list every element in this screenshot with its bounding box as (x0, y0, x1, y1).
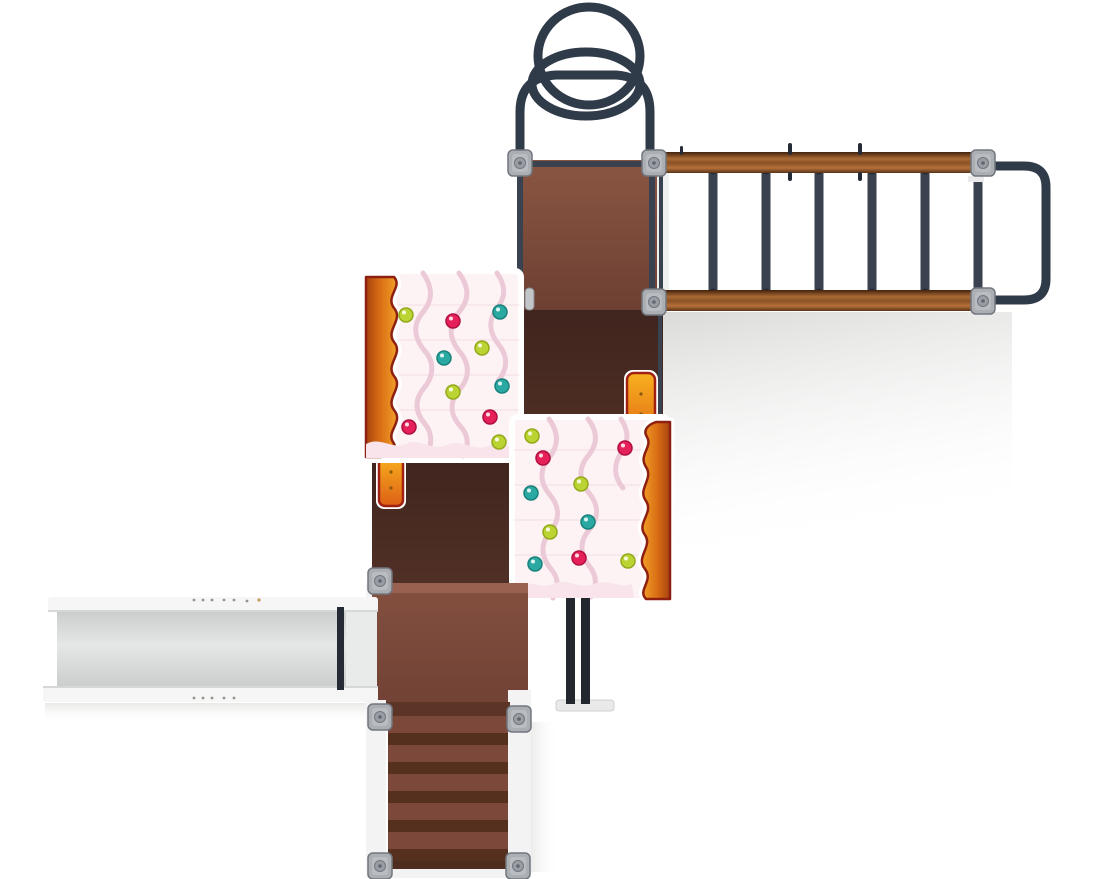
corner-connector (507, 706, 531, 732)
sprinkle-highlight (486, 413, 490, 417)
slide (43, 597, 378, 702)
stair-tread (388, 745, 508, 762)
sprinkle-lime (399, 308, 413, 322)
stair-riser-shadow (388, 791, 508, 803)
sprinkle-highlight (402, 311, 406, 315)
sprinkle-highlight (496, 308, 500, 312)
support-post (581, 598, 590, 704)
connector-bolt-center (517, 717, 521, 721)
hook-icon (858, 143, 862, 155)
sprinkle-lime (543, 525, 557, 539)
sprinkle-highlight (621, 444, 625, 448)
corner-connector (642, 150, 666, 176)
support-post (566, 598, 575, 704)
corner-connector (506, 853, 530, 879)
sprinkle-highlight (495, 438, 499, 442)
sprinkle-teal (524, 486, 538, 500)
sprinkle-highlight (498, 382, 502, 386)
sprinkle-red (572, 551, 586, 565)
sprinkle-highlight (527, 489, 531, 493)
shadow-right-of-stairs (531, 722, 559, 872)
sprinkle-red (618, 441, 632, 455)
end-foot-plate (968, 176, 984, 182)
playground-product-render (0, 0, 1110, 879)
stair-riser-shadow (388, 762, 508, 774)
stair-riser-shadow (388, 820, 508, 832)
slide-rail-bottom (43, 686, 378, 702)
slide-entry-bar (337, 607, 344, 690)
connector-bolt-center (378, 579, 382, 583)
corner-connector (508, 150, 532, 176)
connector-bolt-center (518, 161, 522, 165)
slide-rail-top-edge (48, 610, 378, 612)
connector-bolt-center (652, 300, 656, 304)
monkey-bars-rail-top (663, 152, 985, 173)
connector-bolt-center (378, 715, 382, 719)
hook-icon (680, 146, 683, 155)
shadow-under-slide (45, 703, 380, 723)
sprinkle-red (446, 314, 460, 328)
sprinkle-lime (446, 385, 460, 399)
corner-connector (368, 853, 392, 879)
slide-bed (57, 611, 377, 687)
stair-tread (388, 774, 508, 791)
sprinkle-teal (581, 515, 595, 529)
sprinkle-highlight (546, 528, 550, 532)
sprinkle-highlight (405, 423, 409, 427)
connector-bolt-center (652, 161, 656, 165)
connector-bolt-center (981, 161, 985, 165)
hook-icon (788, 143, 792, 155)
upper-deck (517, 160, 669, 310)
hook-icon (788, 172, 792, 181)
lower-deck-edge-highlight (372, 583, 528, 593)
stair-riser-shadow (388, 849, 508, 861)
panel-right-bottom-band (513, 582, 634, 598)
grip-screw-icon (639, 392, 642, 395)
sprinkle-lime (492, 435, 506, 449)
corner-connector (368, 704, 392, 730)
corner-connector (971, 150, 995, 176)
slide-rail-bottom-edge (43, 686, 378, 688)
sprinkle-highlight (539, 454, 543, 458)
frosting-panel-right (512, 417, 670, 601)
connector-bolt-center (378, 864, 382, 868)
sprinkle-highlight (584, 518, 588, 522)
sprinkle-teal (437, 351, 451, 365)
sprinkle-highlight (449, 317, 453, 321)
corner-connector (642, 289, 666, 315)
sprinkle-highlight (449, 388, 453, 392)
sprinkle-red (402, 420, 416, 434)
sprinkle-teal (493, 305, 507, 319)
stair-tread (388, 803, 508, 820)
monkey-bars-rail-bottom (663, 290, 985, 311)
sprinkle-highlight (478, 344, 482, 348)
sprinkle-lime (525, 429, 539, 443)
corner-connector (971, 288, 995, 314)
sprinkle-teal (528, 557, 542, 571)
panel-left-ginger-edge (366, 277, 397, 457)
connector-bolt-center (516, 864, 520, 868)
playground-structure-top-view (0, 0, 1110, 879)
grip-screw-icon (389, 486, 392, 489)
sprinkle-lime (475, 341, 489, 355)
sprinkle-highlight (440, 354, 444, 358)
sprinkle-highlight (575, 554, 579, 558)
shadow-under-monkey-bars (656, 312, 1012, 562)
sprinkle-teal (495, 379, 509, 393)
stair-riser-shadow (388, 733, 508, 745)
grip-left (379, 456, 403, 506)
sprinkle-highlight (531, 560, 535, 564)
slide-entry-strip (346, 611, 377, 687)
grip-screw-icon (389, 470, 392, 473)
hook-icon (858, 172, 862, 181)
connector-bolt-center (981, 299, 985, 303)
sprinkle-highlight (624, 557, 628, 561)
corner-connector (368, 568, 392, 594)
step-group (388, 716, 508, 861)
upper-deck-surface (517, 160, 657, 310)
sprinkle-lime (621, 554, 635, 568)
sprinkle-lime (574, 477, 588, 491)
sprinkle-red (536, 451, 550, 465)
stair-tread (388, 832, 508, 849)
sprinkle-highlight (528, 432, 532, 436)
stairs-top-band (386, 702, 510, 716)
stair-tread (388, 716, 508, 733)
sprinkle-red (483, 410, 497, 424)
lower-deck-surface (372, 583, 528, 716)
sprinkle-highlight (577, 480, 581, 484)
deck-hinge-cylinder (525, 288, 534, 310)
stairs-bottom-band (388, 861, 508, 869)
frosting-panel-left (363, 271, 521, 460)
